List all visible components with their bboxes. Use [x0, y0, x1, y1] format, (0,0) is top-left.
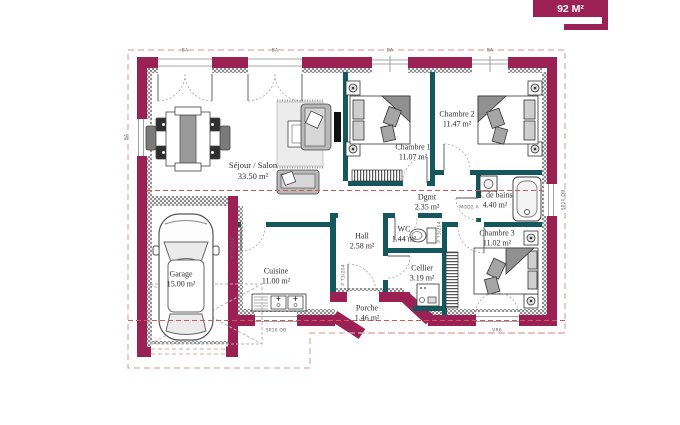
room-label-cuisine: Cuisine11.00 m²	[262, 267, 290, 288]
room-label-cellier: Cellier3.19 m²	[410, 264, 435, 285]
room-label-sdb: S. de bains4.40 m²	[478, 191, 513, 212]
room-label-garage: Garage15.00 m²	[167, 270, 196, 291]
window-label-bay-1: BA	[182, 49, 189, 54]
badge-bracket-horizontal	[564, 24, 608, 30]
room-label-chambre2: Chambre 211.47 m²	[439, 110, 474, 131]
room-label-wc: WC1.44 m²	[392, 225, 417, 246]
floorplan-drawing	[0, 0, 680, 425]
window-label-bay-3: BA	[387, 49, 394, 54]
door-code-label-3: P 73/204	[342, 264, 347, 286]
room-label-chambre3: Chambre 311.02 m²	[479, 229, 514, 250]
room-label-dgmt: Dgmt2.35 m²	[415, 193, 440, 214]
window-label-bath: SP10 OB	[562, 190, 567, 211]
door-code-label-2: P 73/204	[438, 221, 443, 243]
window-label-bay-left: BA	[125, 134, 130, 141]
window-label-bedroom3: VR6	[492, 329, 502, 334]
room-label-hall: Hall2.58 m²	[350, 232, 375, 253]
window-label-bay-4: BA	[487, 49, 494, 54]
area-badge: 92 M²	[533, 0, 608, 17]
room-label-porche: Porche1.46 m²	[355, 304, 380, 325]
window-label-kitchen: SP10 OB	[266, 329, 287, 334]
door-code-label-1: P 73/204	[232, 237, 237, 259]
water-heater	[417, 284, 439, 306]
kitchen-sink	[252, 294, 306, 311]
window-label-bay-2: BA	[272, 49, 279, 54]
floorplan-page: Séjour / Salon33.50 m² Chambre 111.07 m²…	[0, 0, 680, 425]
room-label-sejour: Séjour / Salon33.50 m²	[229, 160, 277, 182]
bed-chambre2	[478, 81, 542, 156]
door-code-label-bath: MOD2 A	[459, 206, 478, 211]
room-label-chambre1: Chambre 111.07 m²	[395, 143, 430, 164]
